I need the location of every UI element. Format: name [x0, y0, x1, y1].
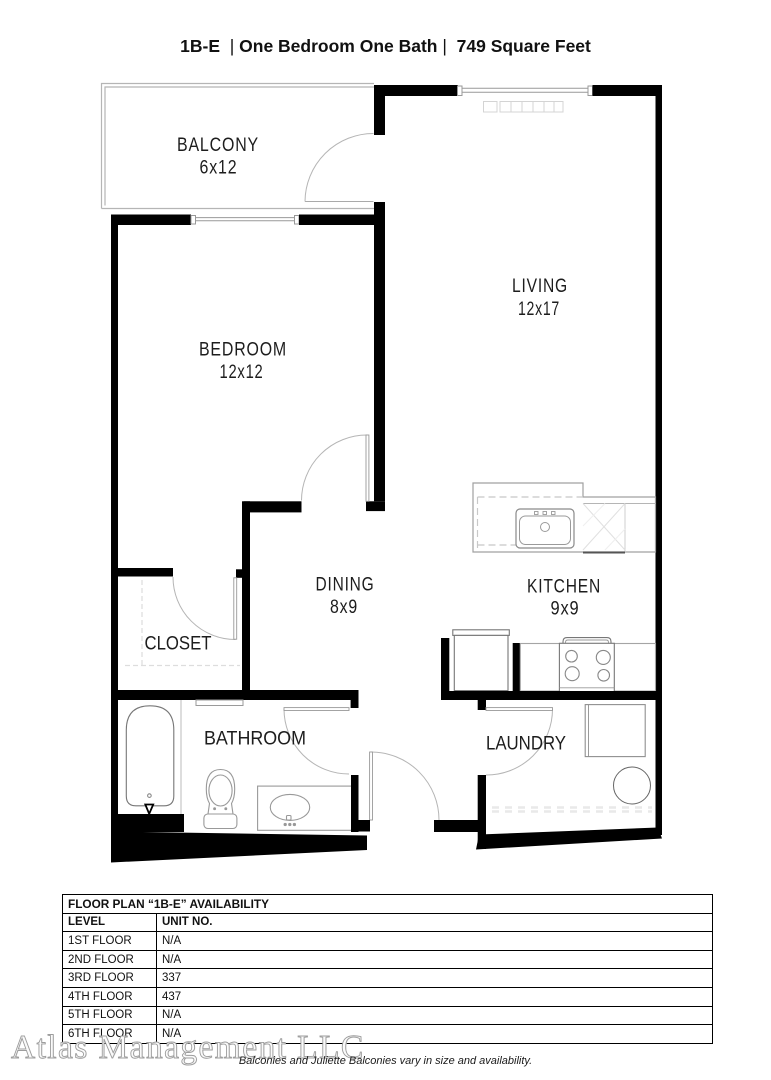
svg-text:LAUNDRY: LAUNDRY [486, 733, 566, 755]
svg-text:12x17: 12x17 [518, 298, 560, 320]
svg-text:LIVING: LIVING [512, 275, 568, 297]
svg-text:BEDROOM: BEDROOM [199, 339, 287, 361]
svg-text:BATHROOM: BATHROOM [204, 728, 306, 750]
svg-text:KITCHEN: KITCHEN [527, 576, 601, 598]
svg-text:6x12: 6x12 [200, 158, 238, 179]
svg-text:BALCONY: BALCONY [177, 135, 259, 156]
svg-text:CLOSET: CLOSET [145, 634, 212, 655]
svg-text:12x12: 12x12 [220, 361, 264, 383]
svg-text:9x9: 9x9 [551, 598, 580, 620]
svg-text:8x9: 8x9 [330, 596, 358, 618]
svg-text:DINING: DINING [316, 574, 375, 596]
